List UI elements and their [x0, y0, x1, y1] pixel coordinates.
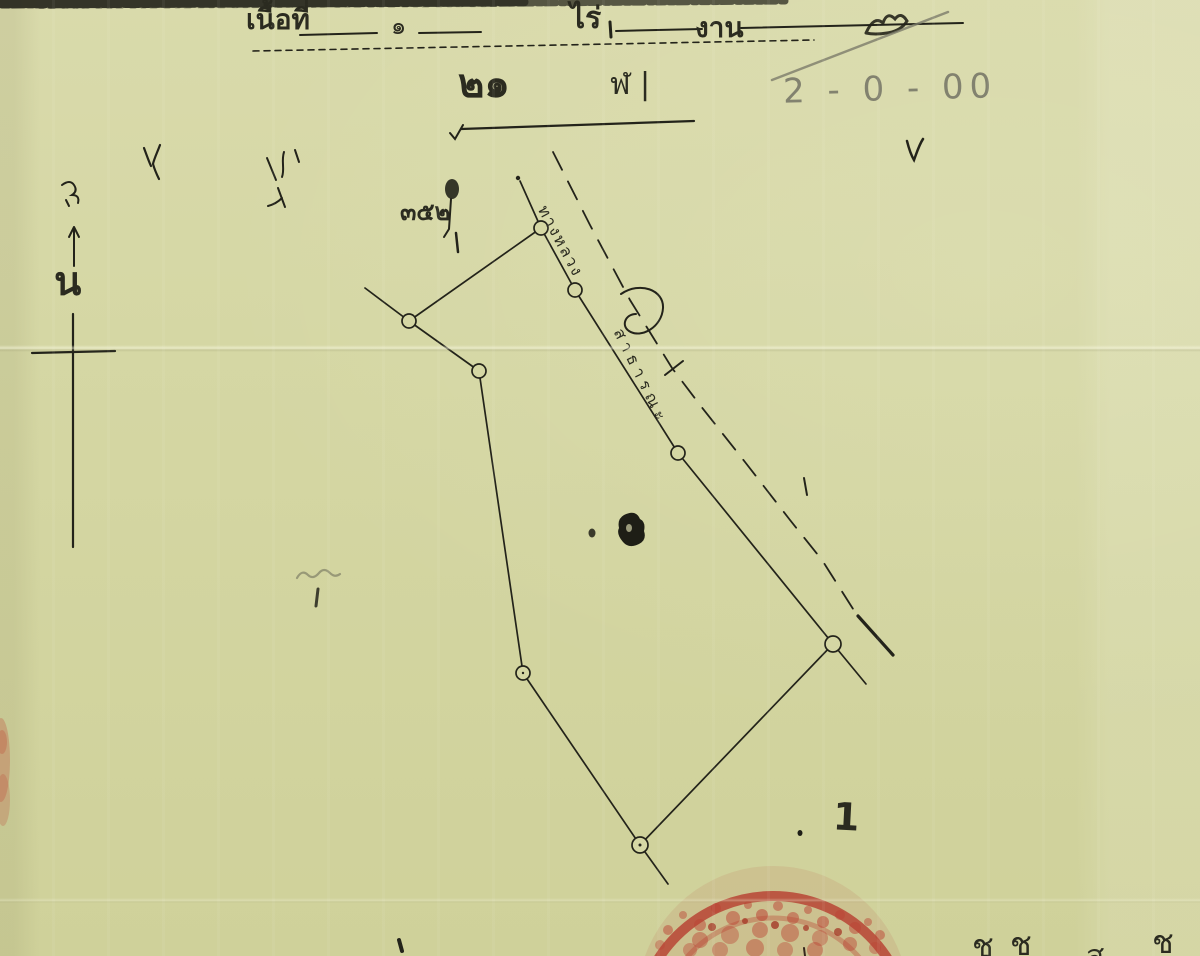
- vertex-marker: [472, 364, 486, 378]
- plot-boundary: [365, 176, 866, 884]
- digit-mark: ๑: [391, 14, 406, 38]
- check-marks: [144, 139, 923, 207]
- bottom-fragment: ช: [1152, 926, 1174, 956]
- bottom-fragment: ส: [1086, 942, 1104, 956]
- survey-number: ๓๕๒: [400, 200, 450, 224]
- vertex-marker: [825, 636, 841, 652]
- faint-scribble: [297, 570, 340, 606]
- bottom-fragment: ช: [972, 930, 994, 956]
- ngan-unit-label: งาน: [695, 14, 744, 42]
- north-letter: น: [54, 262, 81, 302]
- pencil-area-figure: 2 - 0 - 00: [783, 69, 998, 109]
- handwritten-mark: ฬ |: [610, 70, 650, 100]
- scanned-deed-page: เนื้อที่ ๑ ไร่ งาน ๒๑ ฬ | 2 - 0 - 00 ๓๕๒…: [0, 0, 1200, 956]
- area-label: เนื้อที่: [246, 6, 310, 34]
- north-cross-icon: [32, 314, 115, 547]
- one-mark: 1: [832, 797, 860, 836]
- rai-unit-label: ไร่: [570, 4, 601, 34]
- road-dashed-line: [553, 152, 893, 655]
- vertex-marker: [402, 314, 416, 328]
- left-edge-stamp-blotch: [0, 718, 10, 826]
- survey-sketch-linework: [0, 0, 1200, 956]
- handwritten-parcel-number: ๒๑: [458, 64, 510, 104]
- vertex-marker: [568, 283, 582, 297]
- subheader-lines: [450, 121, 694, 139]
- cutoff-print-row: [2, 1, 788, 7]
- official-stamp: [637, 866, 909, 956]
- north-arrow-icon: [62, 182, 79, 266]
- vertex-marker: [671, 446, 685, 460]
- bottom-fragment: ช: [1010, 928, 1032, 956]
- ink-blots: [589, 513, 645, 546]
